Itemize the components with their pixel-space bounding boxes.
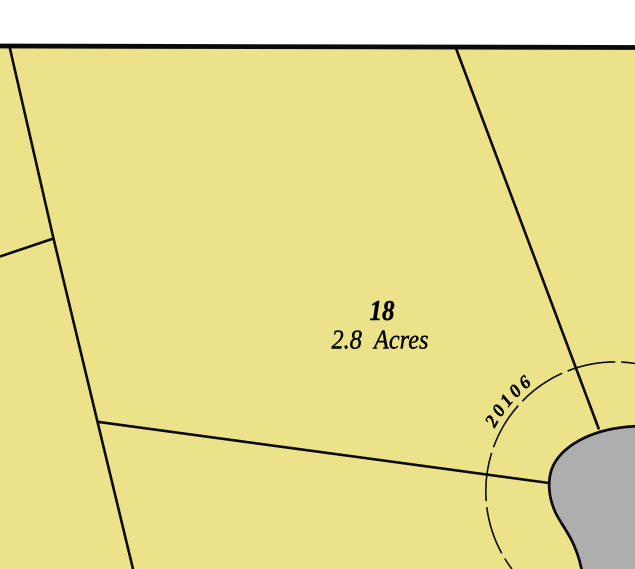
svg-text:2.8 Acres: 2.8 Acres bbox=[332, 325, 429, 355]
svg-text:18: 18 bbox=[370, 295, 395, 327]
